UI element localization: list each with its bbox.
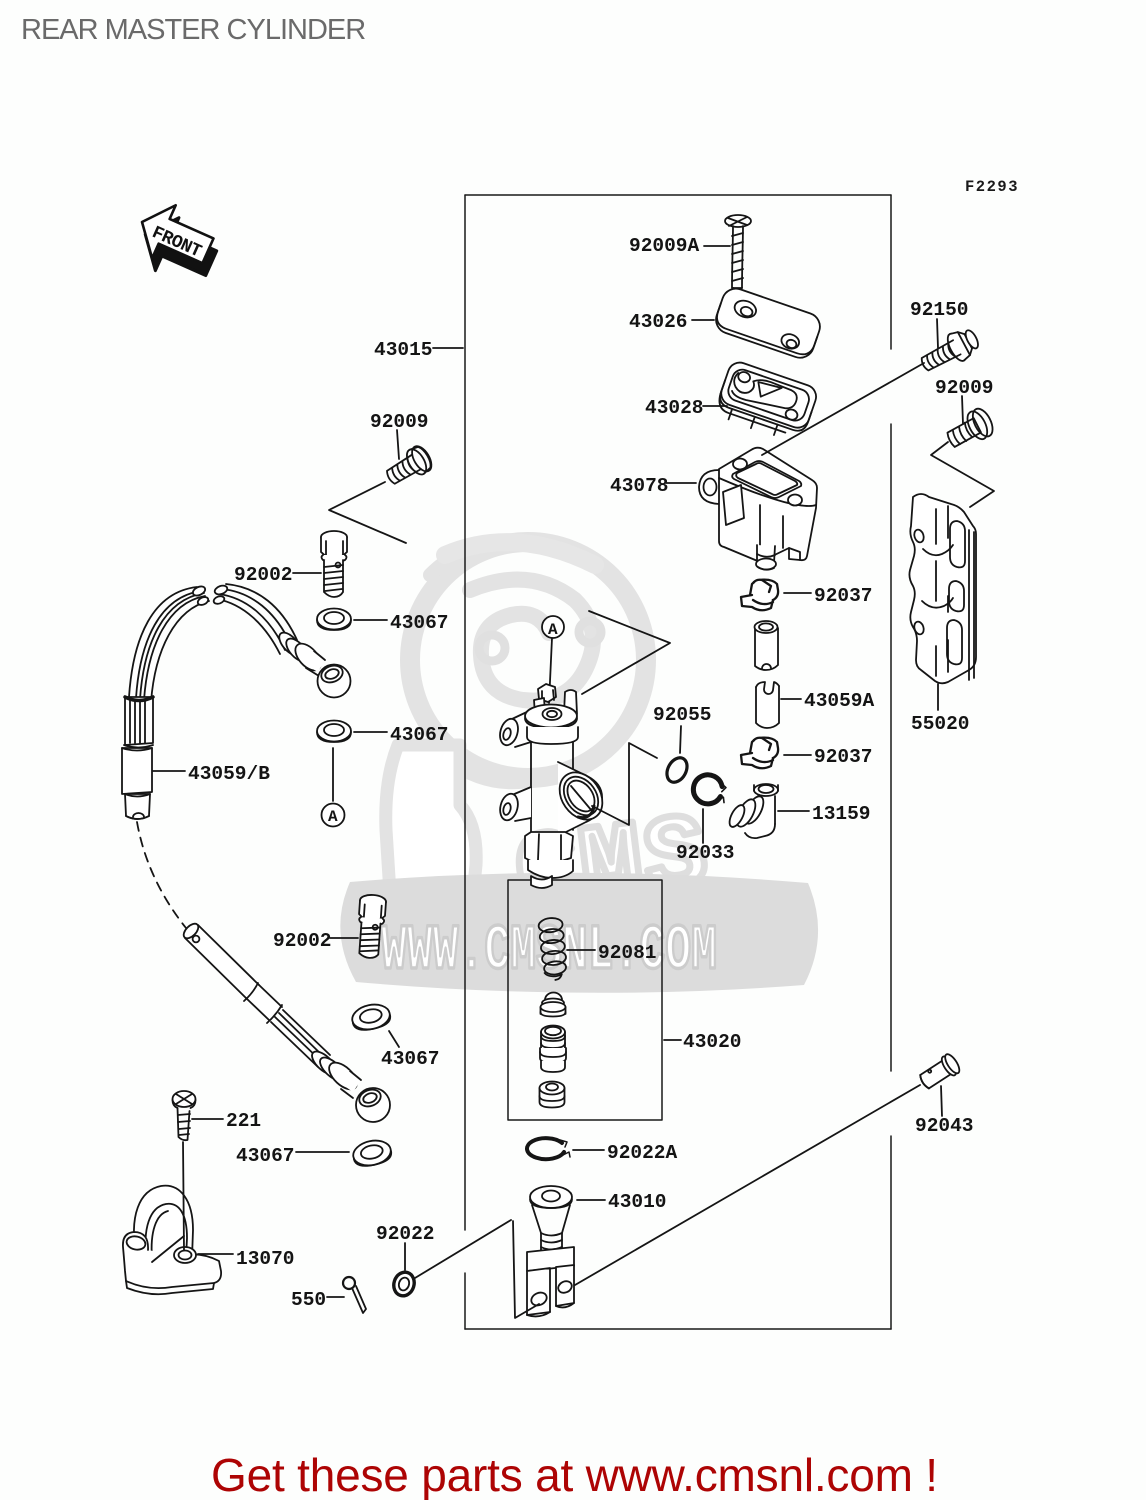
svg-text:92150: 92150 (910, 299, 969, 321)
svg-text:43067: 43067 (390, 612, 449, 634)
svg-text:92037: 92037 (814, 585, 873, 607)
svg-text:92055: 92055 (653, 704, 712, 726)
svg-text:55020: 55020 (911, 713, 970, 735)
svg-text:43067: 43067 (390, 724, 449, 746)
svg-text:92022A: 92022A (607, 1142, 678, 1164)
svg-text:92022: 92022 (376, 1223, 435, 1245)
svg-text:92037: 92037 (814, 746, 873, 768)
svg-text:92081: 92081 (598, 942, 657, 964)
svg-text:92009: 92009 (935, 377, 994, 399)
svg-text:43059/B: 43059/B (188, 763, 270, 785)
svg-text:43015: 43015 (374, 339, 433, 361)
svg-text:Get these parts at www.cmsnl.c: Get these parts at www.cmsnl.com ! (211, 1449, 938, 1500)
svg-text:43020: 43020 (683, 1031, 742, 1053)
svg-text:43067: 43067 (381, 1048, 440, 1070)
svg-text:43059A: 43059A (804, 690, 875, 712)
svg-text:43026: 43026 (629, 311, 688, 333)
svg-text:550: 550 (291, 1289, 326, 1311)
svg-text:43078: 43078 (610, 475, 669, 497)
svg-text:A: A (328, 808, 338, 826)
svg-text:REAR MASTER CYLINDER: REAR MASTER CYLINDER (21, 14, 365, 46)
svg-text:92033: 92033 (676, 842, 735, 864)
svg-text:92009A: 92009A (629, 235, 700, 257)
svg-text:221: 221 (226, 1110, 261, 1132)
svg-text:A: A (548, 621, 558, 639)
svg-text:13070: 13070 (236, 1248, 295, 1270)
svg-text:43067: 43067 (236, 1145, 295, 1167)
svg-text:92043: 92043 (915, 1115, 974, 1137)
svg-text:F2293: F2293 (965, 178, 1019, 196)
svg-text:43010: 43010 (608, 1191, 667, 1213)
svg-text:92009: 92009 (370, 411, 429, 433)
svg-text:43028: 43028 (645, 397, 704, 419)
svg-text:13159: 13159 (812, 803, 871, 825)
svg-text:92002: 92002 (234, 564, 293, 586)
svg-text:92002: 92002 (273, 930, 332, 952)
